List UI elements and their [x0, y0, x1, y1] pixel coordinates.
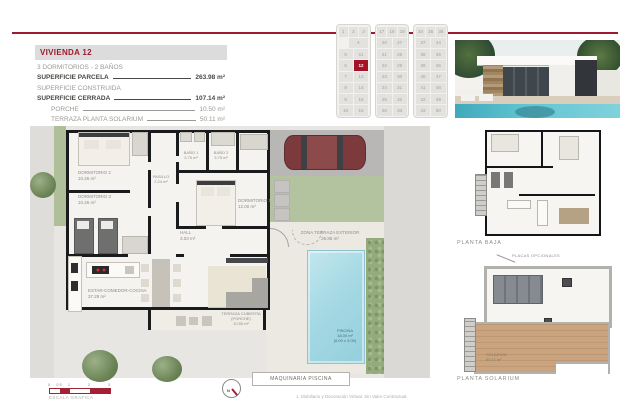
villa-render-photo [455, 40, 620, 118]
room-label-dormitorio3: DORMITORIO 3 10.26 m² [78, 194, 111, 206]
room-name: DORMITORIO 1 [238, 198, 271, 204]
plot-cell: 13 [354, 72, 368, 82]
plot-notch [339, 38, 348, 48]
room-area: 3.75 m² [208, 155, 234, 160]
plot-cell: 11 [354, 49, 368, 59]
room-label-bano2: BAÑO 2 3.75 m² [208, 150, 234, 160]
closet [240, 134, 268, 150]
plot-cell: 12 [354, 60, 368, 70]
plot-cell: 30 [393, 72, 407, 82]
spec-row-parcela: SUPERFICIE PARCELA 263.98 m² [35, 74, 227, 81]
sidewalk [30, 126, 54, 378]
mini-bed [559, 136, 579, 160]
plot-cell: 40 [416, 72, 430, 82]
main-floor-plan: DORMITORIO 2 10.26 m² DORMITORIO 3 10.26… [30, 126, 430, 378]
stepping-stone [274, 208, 290, 221]
tree [82, 350, 118, 382]
plot-cell: 19 [398, 27, 407, 37]
swimming-pool [307, 250, 365, 364]
site-plot-grid: 1234511612713814915101617181920272128222… [336, 24, 448, 118]
placas-opcionales-label: PLACAS OPCIONALES [512, 253, 560, 258]
planta-solarium-caption: PLANTA SOLARIUM [457, 376, 520, 382]
plot-cell: 25 [377, 94, 391, 104]
car [284, 135, 366, 170]
room-label-hall: HALL 3.03 m² [180, 230, 195, 242]
plot-cell: 41 [416, 83, 430, 93]
leader-line [83, 110, 196, 111]
brochure-page: VIVIENDA 12 3 DORMITORIOS - 2 BAÑOS SUPE… [0, 0, 630, 401]
room-name: DORMITORIO 3 [78, 194, 111, 200]
room-area: 10.26 m² [78, 176, 111, 182]
plot-cell: 6 [339, 60, 353, 70]
spec-bedrooms: 3 DORMITORIOS - 2 BAÑOS [35, 64, 227, 71]
roof-vent [562, 278, 572, 287]
washbasin [180, 132, 192, 142]
spec-label: SUPERFICIE PARCELA [37, 74, 109, 81]
deck-notch [556, 362, 608, 374]
scale-tick: 2 [88, 382, 90, 387]
north-compass-icon: N [222, 379, 241, 398]
spec-value: 107.14 m² [195, 95, 225, 102]
graphic-scale-bar: 0 0.5 1 2 3 [49, 382, 109, 396]
plot-cell: 1 [339, 27, 348, 37]
scale-bar-graphic [49, 388, 111, 394]
sun-loungers [461, 92, 495, 101]
scale-caption: ESCALA GRAFICA [49, 395, 93, 400]
stepping-stone [274, 180, 290, 193]
spec-label: SUPERFICIE CONSTRUIDA [37, 85, 121, 92]
wardrobe [122, 236, 148, 254]
wall [541, 132, 543, 166]
room-area: 37.29 m² [88, 294, 147, 300]
double-bed [196, 180, 236, 226]
wall [176, 254, 184, 257]
plot-cell: 7 [339, 72, 353, 82]
spec-value: 263.98 m² [195, 74, 225, 81]
wall [148, 130, 151, 162]
spec-row-terraza-solarium: TERRAZA PLANTA SOLARIUM 50.11 m² [35, 116, 227, 123]
spec-row-construida: SUPERFICIE CONSTRUIDA [35, 85, 227, 92]
room-name: ZONA TERRAZA EXTERIOR [290, 230, 370, 236]
plot-cell: 18 [387, 27, 396, 37]
tree [152, 356, 182, 382]
wall [236, 130, 239, 170]
room-label-bano1: BAÑO 1 3.75 m² [178, 150, 204, 160]
plot-cell: 47 [431, 72, 445, 82]
garden-strip [54, 126, 66, 226]
room-dims: (6.00 x 3.00) [328, 338, 362, 343]
mini-dining-table [537, 200, 548, 226]
plot-cell: 22 [377, 60, 391, 70]
tv-unit [226, 258, 268, 263]
plot-cell: 35 [426, 27, 435, 37]
leader-line [147, 120, 196, 121]
double-bed [78, 132, 130, 166]
room-label-zona-terraza: ZONA TERRAZA EXTERIOR 26.86 m² [290, 230, 370, 242]
top-divider-rule [12, 32, 618, 34]
plot-cell: 27 [393, 38, 407, 48]
toilet [194, 132, 205, 142]
plot-cell: 37 [416, 38, 430, 48]
room-label-porche: TERRAZA CUBIERTA (PORCHE) 10.50 m² [218, 311, 264, 327]
room-area: 10.50 m² [218, 321, 264, 326]
stepping-stone [274, 194, 290, 207]
room-label-piscina: PISCINA 18.00 m² (6.00 x 3.00) [328, 328, 362, 344]
plot-block: 12345116127138149151016 [336, 24, 371, 118]
plot-cell: 33 [393, 105, 407, 115]
plot-cell: 9 [339, 94, 353, 104]
pool-machinery-label: MAQUINARIA PISCINA [270, 376, 332, 382]
spec-row-cerrada: SUPERFICIE CERRADA 107.14 m² [35, 95, 227, 102]
room-area: 50.11 m² [486, 357, 507, 362]
shower [211, 132, 235, 146]
mini-planta-solarium: SOLARIUM 50.11 m² [460, 262, 620, 375]
room-label-dormitorio2: DORMITORIO 2 10.26 m² [78, 170, 111, 182]
villa-title: VIVIENDA 12 [35, 45, 227, 60]
mini-bed [491, 134, 519, 152]
wardrobe [132, 132, 148, 156]
plot-cell: 23 [377, 72, 391, 82]
plot-cell: 36 [436, 27, 445, 37]
scale-tick: 0.5 [56, 382, 62, 387]
plot-cell: 43 [416, 105, 430, 115]
disclaimer-text: 1. Mobiliario y Decoración Virtual. Sin … [296, 394, 408, 399]
plot-cell: 32 [393, 94, 407, 104]
plot-cell: 34 [416, 27, 425, 37]
plot-cell: 29 [393, 60, 407, 70]
tree [30, 172, 56, 198]
spec-row-porche: PORCHE 10.50 m² [35, 106, 227, 113]
plot-cell: 4 [349, 38, 369, 48]
mini-kitchen-island [507, 200, 531, 209]
solar-panels [493, 275, 543, 304]
wall [519, 194, 595, 196]
plot-cell: 28 [393, 49, 407, 59]
dining-table [140, 258, 182, 308]
plot-cell: 49 [431, 94, 445, 104]
room-area: 12.00 m² [238, 204, 271, 210]
leader-line [113, 78, 192, 79]
single-bed [74, 218, 94, 254]
spec-label: PORCHE [51, 106, 79, 113]
mini-twin-beds [491, 172, 513, 188]
sofa [226, 278, 268, 308]
plot-cell: 14 [354, 83, 368, 93]
plot-cell: 44 [431, 38, 445, 48]
single-bed [98, 218, 118, 254]
plot-cell: 39 [416, 60, 430, 70]
wall [487, 166, 553, 168]
plot-cell: 20 [377, 38, 391, 48]
room-label-pasillo: PASILLO 2.24 m² [148, 174, 174, 184]
wall [176, 226, 206, 229]
planta-baja-caption: PLANTA BAJA [457, 240, 502, 246]
hedge [366, 238, 384, 374]
mini-planta-baja [455, 128, 620, 238]
plot-cell: 21 [377, 49, 391, 59]
room-label-dormitorio1: DORMITORIO 1 12.00 m² [238, 198, 271, 210]
wall [176, 202, 179, 226]
spec-value: 10.50 m² [199, 106, 225, 113]
room-area: 3.03 m² [180, 236, 195, 242]
room-area: 10.26 m² [78, 200, 111, 206]
plot-cell: 3 [359, 27, 368, 37]
outside-right [384, 126, 430, 378]
wall [230, 254, 270, 257]
scale-tick: 1 [68, 382, 70, 387]
plot-cell: 17 [377, 27, 386, 37]
room-label-estar: ESTAR-COMEDOR-COCINA 37.29 m² [88, 288, 147, 300]
room-area: 2.24 m² [148, 179, 174, 184]
solarium-room-label: SOLARIUM 50.11 m² [486, 352, 507, 363]
plot-cell: 8 [339, 83, 353, 93]
spec-label: SUPERFICIE CERRADA [37, 95, 110, 102]
room-name: ESTAR-COMEDOR-COCINA [88, 288, 147, 294]
kitchen-counter [68, 256, 82, 312]
compass-needle [231, 388, 238, 395]
plot-cell: 46 [431, 60, 445, 70]
plot-block: 1718192027212822292330243125322633 [375, 24, 410, 118]
kitchen-island [86, 262, 140, 278]
wall [176, 170, 270, 173]
plot-cell: 31 [393, 83, 407, 93]
scale-tick: 0 [48, 382, 50, 387]
spec-bedrooms-label: 3 DORMITORIOS - 2 BAÑOS [37, 64, 123, 71]
plot-cell: 16 [354, 105, 368, 115]
plot-cell: 42 [416, 94, 430, 104]
plot-cell: 26 [377, 105, 391, 115]
room-area: 26.86 m² [290, 236, 370, 242]
leader-line [114, 99, 191, 100]
plot-cell: 48 [431, 83, 445, 93]
wall [148, 216, 151, 254]
mini-stairs [475, 174, 487, 216]
porch-furniture [176, 314, 212, 327]
spec-label: TERRAZA PLANTA SOLARIUM [51, 116, 143, 123]
plot-block: 3435363744384539464047414842494350 [413, 24, 448, 118]
spec-value: 50.11 m² [200, 116, 225, 123]
plot-cell: 38 [416, 49, 430, 59]
plot-cell: 15 [354, 94, 368, 104]
room-name: DORMITORIO 2 [78, 170, 111, 176]
solarium-stairs [464, 318, 476, 372]
plot-cell: 10 [339, 105, 353, 115]
pool-machinery-box: MAQUINARIA PISCINA [252, 372, 350, 386]
mini-sofa [559, 208, 589, 224]
wall [176, 162, 179, 184]
pool-reflection [515, 106, 555, 118]
plot-cell: 2 [349, 27, 358, 37]
room-area: 3.75 m² [178, 155, 204, 160]
plot-cell: 45 [431, 49, 445, 59]
scale-tick: 3 [108, 382, 110, 387]
compass-north-letter: N [227, 388, 230, 393]
wall [66, 190, 130, 193]
wall [222, 226, 270, 229]
plot-cell: 24 [377, 83, 391, 93]
plot-cell: 5 [339, 49, 353, 59]
room-name: TERRAZA CUBIERTA (PORCHE) [218, 311, 264, 321]
plot-cell: 50 [431, 105, 445, 115]
